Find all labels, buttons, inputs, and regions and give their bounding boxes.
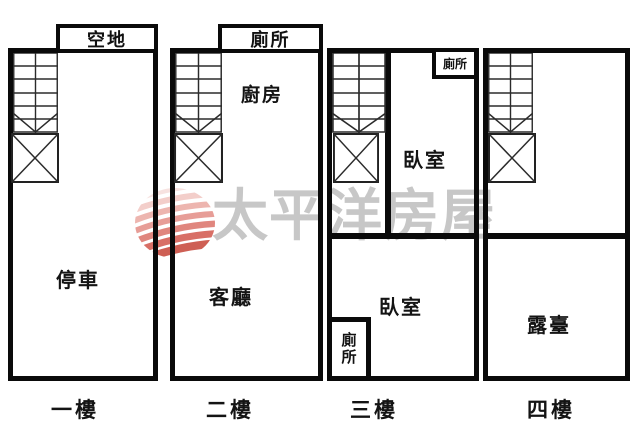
floor-label-2f: 二樓 (180, 394, 280, 424)
toilet-room: 廁所 (432, 48, 478, 79)
room-label-terrace: 露臺 (499, 309, 599, 338)
floorplan-image: 太平洋房屋 空地 停車 一樓 廁所 (0, 0, 640, 431)
annex-toilet: 廁所 (218, 24, 323, 53)
stair-landing-cross-icon (488, 133, 536, 183)
floor-label-1f: 一樓 (25, 394, 125, 424)
room-label-toilet: 廁所 (443, 55, 467, 72)
toilet-room: 廁所 (327, 317, 371, 381)
room-label-bedroom: 臥室 (375, 144, 475, 173)
room-label-living-room: 客廳 (181, 281, 281, 310)
stair-landing-cross-icon (11, 133, 59, 183)
stair-landing-cross-icon (333, 133, 379, 183)
wall-divider (327, 233, 479, 239)
wall-divider (483, 233, 630, 239)
staircase-icon (488, 53, 533, 133)
room-label-toilet: 廁所 (341, 332, 358, 367)
floor-label-3f: 三樓 (324, 394, 424, 424)
annex-open-space: 空地 (56, 24, 158, 53)
staircase-icon (13, 53, 58, 133)
room-label-kitchen: 廚房 (212, 80, 312, 107)
stair-landing-cross-icon (174, 133, 223, 183)
room-label-parking: 停車 (28, 264, 128, 293)
staircase-icon (332, 53, 386, 133)
floor-label-4f: 四樓 (501, 394, 601, 424)
annex-toilet-label: 廁所 (251, 26, 291, 52)
annex-open-space-label: 空地 (87, 26, 127, 52)
room-label-bedroom: 臥室 (351, 291, 451, 320)
